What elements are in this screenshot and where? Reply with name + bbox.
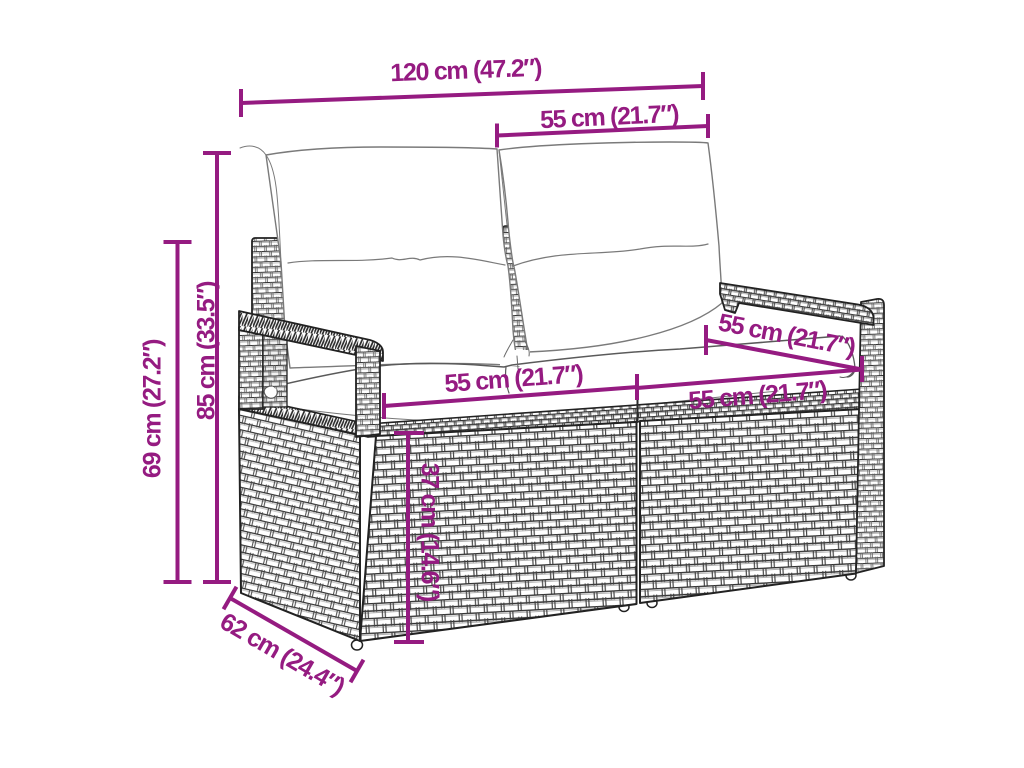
svg-text:69 cm (27.2″): 69 cm (27.2″)	[139, 339, 167, 478]
svg-text:120 cm (47.2″): 120 cm (47.2″)	[390, 54, 543, 88]
svg-text:37 cm (14.6″): 37 cm (14.6″)	[416, 463, 444, 602]
svg-text:85 cm (33.5″): 85 cm (33.5″)	[193, 281, 221, 420]
